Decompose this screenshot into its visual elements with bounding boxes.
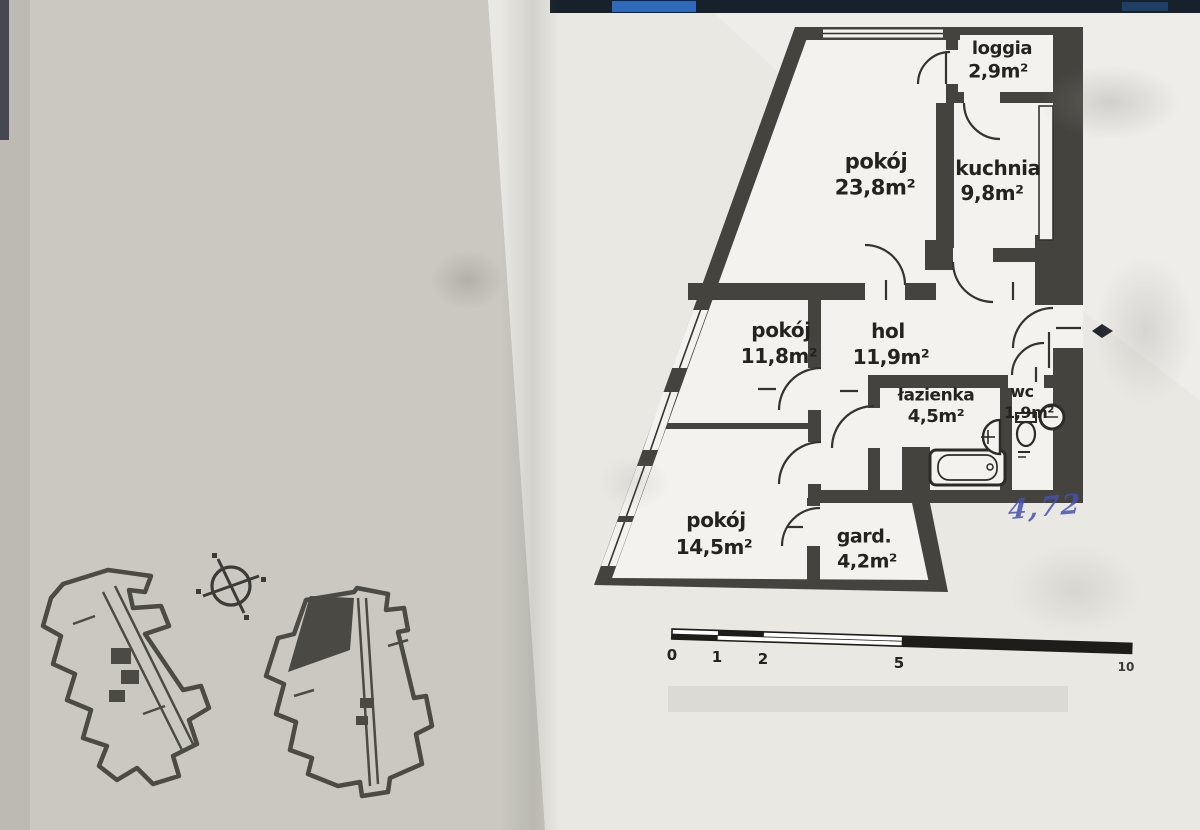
scale-label-5: 5 <box>894 654 904 672</box>
handwritten-note: 4,72 <box>1007 489 1082 527</box>
wall-bedroom1-bedroom2 <box>658 423 821 429</box>
wall-duct-shaft <box>902 447 930 490</box>
room-area-loggia: 2,9m² <box>968 63 1028 82</box>
room-label-wc: wc <box>1010 384 1033 400</box>
floor-plan-photo: loggia 2,9m² pokój 23,8m² kuchnia 9,8m² … <box>0 0 1200 830</box>
kitchen-counter-icon <box>1039 106 1053 240</box>
room-label-living-room: pokój <box>845 152 908 173</box>
scale-label-10: 10 <box>1118 660 1135 674</box>
room-area-kitchen: 9,8m² <box>960 183 1023 203</box>
room-area-wardrobe: 4,2m² <box>837 553 897 572</box>
scale-label-1: 1 <box>712 648 722 666</box>
wall-kitchen-left <box>936 103 954 248</box>
room-area-living-room: 23,8m² <box>835 178 916 199</box>
room-area-bedroom2: 14,5m² <box>676 537 753 557</box>
room-label-bedroom2: pokój <box>686 510 745 530</box>
wall-loggia-bottom <box>946 92 964 103</box>
room-label-loggia: loggia <box>972 40 1032 58</box>
room-label-kitchen: kuchnia <box>955 158 1040 178</box>
scale-label-2: 2 <box>758 650 768 668</box>
wall-vestibule <box>1035 235 1083 305</box>
room-area-hall: 11,9m² <box>853 347 930 367</box>
room-label-bedroom1: pokój <box>751 320 810 340</box>
room-area-wc: 1,9m² <box>1004 405 1054 421</box>
wall-loggia-top <box>958 27 1055 35</box>
room-area-bedroom1: 11,8m² <box>741 346 818 366</box>
room-label-wardrobe: gard. <box>837 528 892 547</box>
room-area-bathroom: 4,5m² <box>908 408 965 426</box>
wall-corridor-left <box>808 429 821 442</box>
room-label-bathroom: łazienka <box>898 388 975 405</box>
wall-loggia-left <box>946 27 958 50</box>
scale-label-0: 0 <box>667 646 677 664</box>
room-label-hall: hol <box>871 321 905 341</box>
wall-living-room-bottom <box>688 283 865 300</box>
